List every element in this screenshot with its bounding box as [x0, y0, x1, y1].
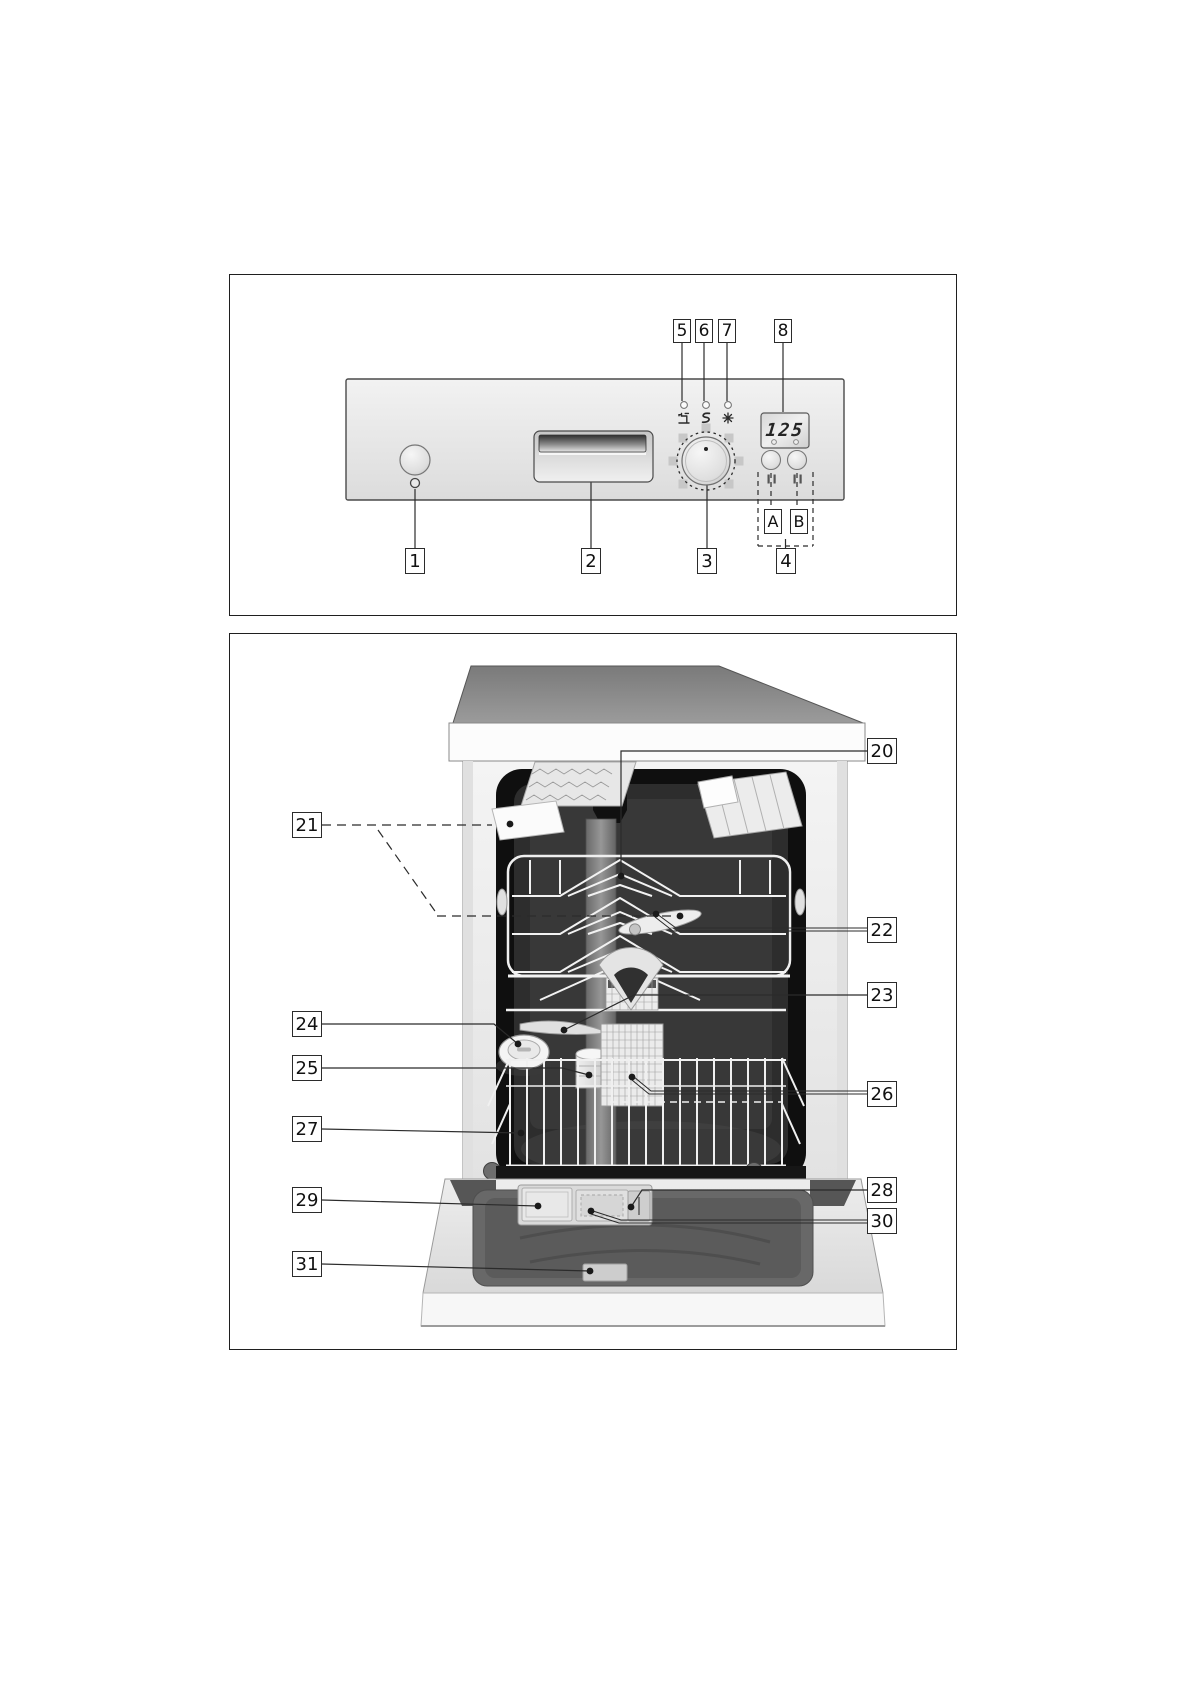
callout-box-5: 5	[673, 319, 691, 343]
dishwasher-art	[230, 634, 956, 1349]
callout-box-31: 31	[292, 1251, 322, 1277]
door-front-edge	[421, 1293, 885, 1326]
worktop-front-band	[449, 723, 865, 761]
basket-rail-pin	[497, 889, 507, 915]
callout-box-2: 2	[581, 548, 601, 574]
callout-box-23: 23	[867, 982, 897, 1008]
folding-shelf	[521, 762, 636, 806]
door-handle-recess	[534, 431, 653, 482]
callout-box-7: 7	[718, 319, 736, 343]
indicator-led	[725, 402, 732, 409]
right-rack-bracket	[698, 776, 738, 808]
power-button	[400, 445, 430, 475]
basket-rail-pin	[795, 889, 805, 915]
callout-box-21: 21	[292, 812, 322, 838]
callout-box-3: 3	[697, 548, 717, 574]
indicator-led	[681, 402, 688, 409]
knob-marker	[704, 447, 708, 451]
callout-box-4: 4	[776, 548, 796, 574]
rinse-aid-icon	[723, 413, 733, 423]
dispenser-lid	[522, 1188, 572, 1221]
door-handle	[539, 435, 646, 452]
power-icon	[411, 479, 420, 488]
callout-box-a: A	[764, 509, 782, 534]
display-value: 125	[759, 413, 811, 448]
callout-box-26: 26	[867, 1081, 897, 1107]
callout-box-20: 20	[867, 738, 897, 764]
cutlery-basket	[599, 947, 663, 1106]
option-button-b	[788, 451, 807, 470]
cabinet-right-edge	[837, 761, 847, 1185]
indicator-led	[703, 402, 710, 409]
callout-box-29: 29	[292, 1187, 322, 1213]
option-button-a	[762, 451, 781, 470]
callout-box-28: 28	[867, 1177, 897, 1203]
callout-box-27: 27	[292, 1116, 322, 1142]
callout-box-6: 6	[695, 319, 713, 343]
callout-box-30: 30	[867, 1208, 897, 1234]
interior-view-figure: 21 24 25 27 29 31 20 22 23 26 28 30	[229, 633, 957, 1350]
worktop	[453, 666, 863, 723]
callout-box-1: 1	[405, 548, 425, 574]
callout-box-8: 8	[774, 319, 792, 343]
callout-box-24: 24	[292, 1011, 322, 1037]
callout-box-25: 25	[292, 1055, 322, 1081]
callout-box-22: 22	[867, 917, 897, 943]
callout-box-b: B	[790, 509, 808, 534]
control-panel-figure: 125 5 6 7 8 1 2 3 4 A B	[229, 274, 957, 616]
manual-page: 125 5 6 7 8 1 2 3 4 A B	[0, 0, 1190, 1684]
